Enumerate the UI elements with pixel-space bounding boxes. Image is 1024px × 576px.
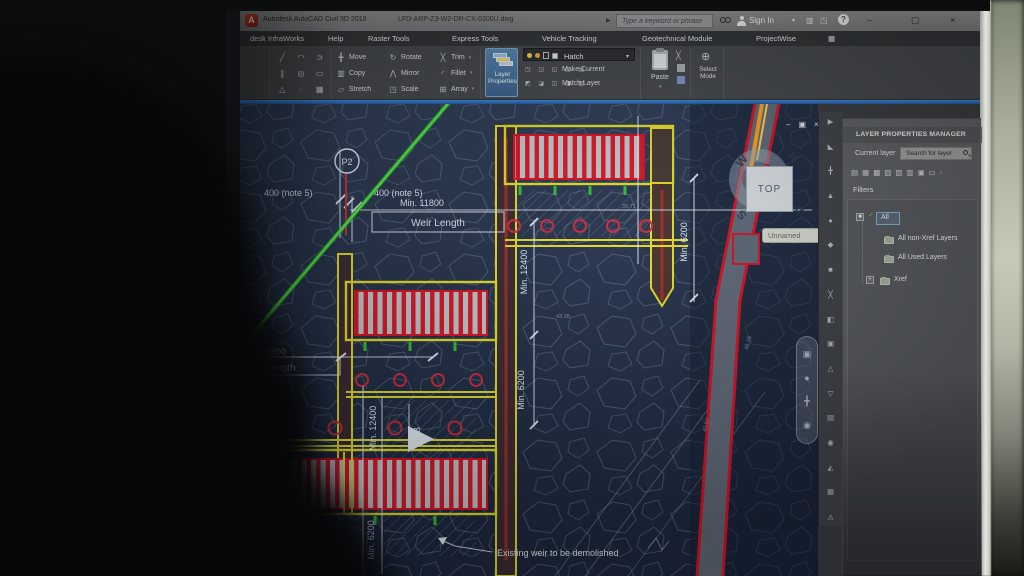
search-icon xyxy=(963,150,971,158)
app-store-icon[interactable]: ▥ xyxy=(806,16,814,25)
tab-raster-tools[interactable]: Raster Tools xyxy=(368,34,410,43)
folder-icon xyxy=(884,256,894,263)
dim-400-note5-top-right: 400 (note 5) xyxy=(374,188,423,198)
side-toolbar[interactable]: ▶◣╋▲●◆■╳◧▣△▽▤◉◭▦◬ xyxy=(818,112,842,526)
filters-label: Filters xyxy=(853,185,873,194)
monitor-bezel-top xyxy=(226,0,990,11)
toolbar-icon[interactable]: ▶ xyxy=(828,117,834,126)
ribbon-tab-bar: desk InfraWorks Help Raster Tools Expres… xyxy=(240,31,980,46)
ribbon-tool-scale[interactable]: ◳Scale xyxy=(388,81,438,97)
folder-icon xyxy=(880,278,890,285)
marker-p2: P2 xyxy=(341,157,352,167)
toolbar-icon[interactable]: ◉ xyxy=(827,438,834,447)
ribbon-tool-trim[interactable]: ╳Trim▾ xyxy=(438,50,478,66)
paste-caret-icon[interactable]: ▾ xyxy=(659,84,662,90)
autocad-screen: A Autodesk AutoCAD Civil 3D 2018 LFD-ARP… xyxy=(240,11,980,576)
dropdown-caret-icon[interactable]: ▾ xyxy=(626,53,629,60)
title-bar: A Autodesk AutoCAD Civil 3D 2018 LFD-ARP… xyxy=(240,11,980,31)
sign-in-caret-icon[interactable]: ▾ xyxy=(792,17,795,24)
move-icon: ╋ xyxy=(336,53,346,62)
photo-of-monitor: A Autodesk AutoCAD Civil 3D 2018 LFD-ARP… xyxy=(0,0,1024,576)
toolbar-icon[interactable]: ▲ xyxy=(827,191,834,200)
toolbar-icon[interactable]: ◭ xyxy=(828,463,834,472)
stretch-icon: ▱ xyxy=(336,85,346,94)
toolbar-icon[interactable]: ⊃ xyxy=(316,53,323,62)
layer-lock-icon[interactable] xyxy=(543,52,549,59)
toolbar-icon[interactable]: ◌ xyxy=(299,85,304,94)
toolbar-icon[interactable]: ■ xyxy=(828,265,833,274)
expand-icon[interactable]: + xyxy=(866,276,874,284)
toolbar-icon[interactable]: ▧ xyxy=(895,168,902,178)
toolbar-icon[interactable]: ╋ xyxy=(804,396,809,407)
ribbon-tool-fillet[interactable]: ◜Fillet▾ xyxy=(438,66,478,82)
tool-label: Array xyxy=(451,86,468,93)
palette-title[interactable]: LAYER PROPERTIES MANAGER xyxy=(843,127,982,143)
toolbar-icon[interactable]: ∥ xyxy=(280,69,284,78)
layer-properties-label: Layer Properties xyxy=(486,71,519,85)
sign-in-button[interactable]: Sign In xyxy=(749,16,774,25)
draw-panel-tools: ╱◠⊃∥◎▭△◌▦ xyxy=(273,49,329,97)
layer-filter-tree: ■ ✓ All All non-Xref Layers All Used Lay… xyxy=(847,199,978,561)
toolbar-icon[interactable]: ◎ xyxy=(298,69,305,78)
tool-label: Scale xyxy=(401,86,419,93)
select-mode-icon[interactable]: ⊕ xyxy=(701,50,710,63)
layers-stack-icon xyxy=(493,53,511,67)
label-weir-length-top: Weir Length xyxy=(411,218,465,229)
scale-icon: ◳ xyxy=(388,85,398,94)
fillet-icon: ◜ xyxy=(438,69,448,78)
cut-scissors-icon[interactable]: ╳ xyxy=(676,51,681,60)
modify-panel-tools: ╋Move ↻Rotate ╳Trim▾ ▥Copy ⋀Mirror ◜Fill… xyxy=(336,50,478,97)
toolbar-icon[interactable]: ▦ xyxy=(862,168,869,178)
tool-label: Fillet xyxy=(451,70,466,77)
layer-select-dropdown[interactable]: Hatch ▾ xyxy=(523,48,635,61)
toolbar-icon[interactable]: ╋ xyxy=(828,166,833,175)
toolbar-icon[interactable]: ▤ xyxy=(827,413,834,422)
tree-guide-line xyxy=(862,222,863,284)
tool-label: Copy xyxy=(349,70,365,77)
sign-in-person-icon[interactable] xyxy=(737,16,746,26)
toolbar-icon[interactable]: ▣ xyxy=(918,168,925,178)
toolbar-icon[interactable]: ● xyxy=(804,373,809,383)
match-layer-button[interactable]: Match Layer xyxy=(562,80,601,87)
search-binoculars-icon[interactable] xyxy=(720,17,730,25)
current-layer-label: Current layer xyxy=(855,150,895,157)
layer-toolbar[interactable]: ▤▦▩▨▧▥▣▭▫ xyxy=(847,166,978,180)
toolbar-icon[interactable]: ╱ xyxy=(280,53,285,62)
dim-min-6200-right-lower: Min. 6200 xyxy=(516,370,526,410)
tool-label: Move xyxy=(349,54,366,61)
caret-down-icon[interactable]: ▾ xyxy=(470,70,473,76)
current-layer-value: Hatch xyxy=(564,52,584,61)
caret-down-icon[interactable]: ▾ xyxy=(469,55,472,61)
tab-vehicle-tracking[interactable]: Vehicle Tracking xyxy=(542,34,597,43)
layer-properties-manager: LAYER PROPERTIES MANAGER Current layer ▤… xyxy=(842,118,981,576)
make-current-button[interactable]: Make Current xyxy=(562,66,604,73)
caret-down-icon[interactable]: ▾ xyxy=(472,86,475,92)
tool-label: Rotate xyxy=(401,54,422,61)
file-name: LFD-ARP-Z3-W2-DR-CX-0300U.dwg xyxy=(398,16,514,23)
tree-item-non-xref[interactable]: All non-Xref Layers xyxy=(898,235,958,242)
toolbar-icon[interactable]: ▽ xyxy=(828,389,834,398)
dim-400-note5-top-left: 400 (note 5) xyxy=(264,188,313,198)
tab-infraworks[interactable]: desk InfraWorks xyxy=(250,34,304,43)
toolbar-icon[interactable]: ◧ xyxy=(827,315,834,324)
window-close-button[interactable]: × xyxy=(950,15,955,25)
drawing-maximize-button[interactable]: ▣ xyxy=(798,120,814,129)
toolbar-icon[interactable]: ╳ xyxy=(828,290,833,299)
note-existing-weir-demolished: Existing weir to be demolished xyxy=(497,548,619,558)
layer-color-chip[interactable] xyxy=(552,53,558,59)
ribbon-tool-mirror[interactable]: ⋀Mirror xyxy=(388,66,438,82)
tree-item-xref[interactable]: Xref xyxy=(894,276,907,283)
collapse-icon[interactable]: ■ xyxy=(856,213,864,221)
viewcube[interactable]: N E S W TOP xyxy=(724,144,820,240)
viewcube-top-face[interactable]: TOP xyxy=(746,166,793,212)
paste-special-icon[interactable] xyxy=(677,76,685,84)
dim-min-12400-bottom: Min. 12400 xyxy=(368,406,378,451)
trim-icon: ╳ xyxy=(438,53,448,62)
window-maximize-button[interactable]: ▢ xyxy=(911,15,920,26)
window-minimize-button[interactable]: – xyxy=(867,15,872,25)
toolbar-icon[interactable]: ▣ xyxy=(803,349,812,360)
array-icon: ⊞ xyxy=(438,85,448,94)
layer-search-box[interactable] xyxy=(900,147,972,160)
tab-express-tools[interactable]: Express Tools xyxy=(452,34,499,43)
ribbon-tool-stretch[interactable]: ▱Stretch xyxy=(336,81,388,97)
drawing-minimize-button[interactable]: ‒ xyxy=(786,120,798,129)
ribbon-tool-copy[interactable]: ▥Copy xyxy=(336,66,388,82)
toolbar-icon[interactable]: △ xyxy=(828,364,834,373)
help-icon[interactable]: ? xyxy=(838,14,849,25)
layer-tooltip: Unnamed xyxy=(762,228,820,243)
toolbar-icon[interactable]: ▤ xyxy=(851,168,858,178)
paste-clipboard-icon[interactable] xyxy=(652,50,668,70)
search-history-icon[interactable]: ▶ xyxy=(606,17,611,24)
tab-help[interactable]: Help xyxy=(328,34,343,43)
toolbar-icon[interactable]: ▭ xyxy=(929,168,936,178)
toolbar-icon[interactable]: ◬ xyxy=(828,512,834,521)
section-marker-b: B xyxy=(412,427,422,433)
spot-level: 43.28 xyxy=(556,314,570,320)
autocad-logo-icon[interactable]: A xyxy=(245,14,258,27)
compass-north[interactable]: N xyxy=(785,149,801,165)
tool-label: Mirror xyxy=(401,70,419,77)
copy-clip-icon[interactable] xyxy=(677,64,685,72)
toolbar-icon[interactable]: ◆ xyxy=(828,240,834,249)
paste-button[interactable]: Paste xyxy=(651,74,669,81)
toolbar-icon[interactable]: ◣ xyxy=(828,142,834,151)
tab-geotechnical-module[interactable]: Geotechnical Module xyxy=(642,34,712,43)
ribbon-tool-rotate[interactable]: ↻Rotate xyxy=(388,50,438,66)
layer-thaw-sun-icon[interactable] xyxy=(535,53,540,58)
room-background xyxy=(990,0,1024,576)
toolbar-icon[interactable]: ▨ xyxy=(884,168,891,178)
spot-level: 39.71 xyxy=(622,204,636,210)
toolbar-icon[interactable]: △ xyxy=(279,85,285,94)
toolbar-icon[interactable]: ▭ xyxy=(316,69,324,78)
mirror-icon: ⋀ xyxy=(388,69,398,78)
toolbar-icon[interactable]: ▩ xyxy=(873,168,880,178)
tree-item-all[interactable]: All xyxy=(881,214,889,221)
dim-min-11800-top: Min. 11800 xyxy=(400,198,444,208)
rotate-icon: ↻ xyxy=(388,53,398,62)
select-mode-button[interactable]: Select Mode xyxy=(693,66,723,80)
toolbar-icon[interactable]: ▥ xyxy=(906,168,913,178)
folder-icon xyxy=(884,237,894,244)
share-icon[interactable]: ◳ xyxy=(820,16,828,25)
dim-min-12400-right: Min. 12400 xyxy=(519,250,529,295)
keyword-search-box[interactable] xyxy=(616,14,713,28)
toolbar-icon[interactable]: ● xyxy=(828,216,833,225)
tab-overflow-icon[interactable]: ▦ xyxy=(828,34,835,43)
tab-projectwise[interactable]: ProjectWise xyxy=(756,34,796,43)
layer-properties-button[interactable]: Layer Properties xyxy=(485,48,518,97)
tool-label: Stretch xyxy=(349,86,371,93)
ribbon-tool-move[interactable]: ╋Move xyxy=(336,50,388,66)
keyword-search-input[interactable] xyxy=(620,15,710,27)
app-title: Autodesk AutoCAD Civil 3D 2018 xyxy=(263,16,367,23)
tool-label: Trim xyxy=(451,54,465,61)
toolbar-icon[interactable]: ◠ xyxy=(298,53,305,62)
check-icon: ✓ xyxy=(868,211,874,219)
toolbar-icon[interactable]: ◉ xyxy=(803,420,811,431)
layer-search-input[interactable] xyxy=(904,148,960,159)
toolbar-icon[interactable]: ▦ xyxy=(827,487,834,496)
tree-item-all-used[interactable]: All Used Layers xyxy=(898,254,947,261)
compass-east[interactable]: E xyxy=(792,203,808,218)
copy-icon: ▥ xyxy=(336,69,346,78)
dim-min-6200-far-right: Min. 6200 xyxy=(679,222,689,262)
layer-on-bulb-icon[interactable] xyxy=(527,53,532,58)
toolbar-icon[interactable]: ▣ xyxy=(827,339,834,348)
navigation-bar[interactable]: ▣●╋◉ xyxy=(796,336,818,444)
ribbon-tool-array[interactable]: ⊞Array▾ xyxy=(438,81,478,97)
toolbar-icon[interactable]: ▫ xyxy=(940,168,943,178)
toolbar-icon[interactable]: ▦ xyxy=(316,85,324,94)
